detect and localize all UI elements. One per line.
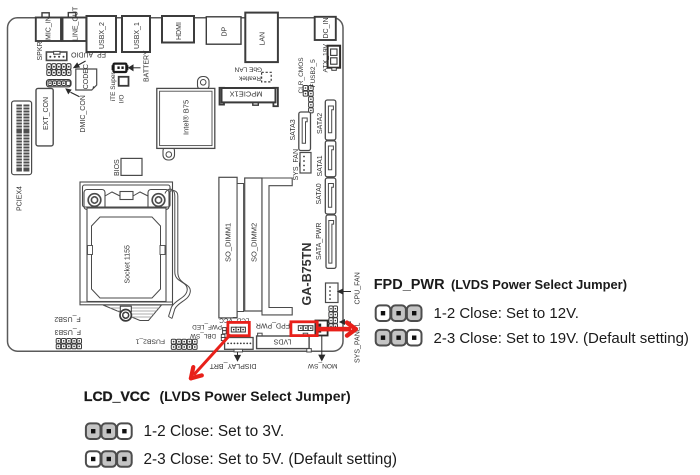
svg-text:SPKR: SPKR	[37, 41, 44, 60]
svg-text:SO_DIMM2: SO_DIMM2	[250, 223, 259, 262]
svg-text:EXT_CON: EXT_CON	[43, 97, 50, 130]
svg-text:BATTERY: BATTERY	[144, 50, 151, 82]
svg-text:USBX_2: USBX_2	[99, 22, 106, 49]
svg-text:GbE LAN: GbE LAN	[234, 65, 262, 72]
svg-text:SATA2: SATA2	[317, 113, 324, 134]
svg-text:FPD_PWR(LVDS Power Select Jump: FPD_PWR(LVDS Power Select Jumper)	[374, 277, 627, 293]
svg-text:FPD_PWR: FPD_PWR	[256, 322, 290, 329]
svg-text:CPU_FAN: CPU_FAN	[355, 272, 362, 304]
svg-text:Intel® B75: Intel® B75	[182, 100, 191, 135]
svg-text:Socket 1155: Socket 1155	[125, 245, 132, 284]
svg-text:DBL_SW: DBL_SW	[190, 332, 216, 339]
svg-text:BIOS: BIOS	[114, 159, 121, 176]
svg-text:SATA0: SATA0	[316, 183, 323, 204]
svg-text:PCIEX4: PCIEX4	[17, 186, 24, 211]
svg-text:iTE Super: iTE Super	[110, 72, 117, 102]
svg-text:2-3 Close: Set to 5V. (Default: 2-3 Close: Set to 5V. (Default setting)	[144, 451, 398, 468]
svg-text:Realtek: Realtek	[238, 75, 261, 82]
svg-text:DC_IN: DC_IN	[323, 17, 330, 38]
svg-text:LCD_VCC(LVDS Power Select Jump: LCD_VCC(LVDS Power Select Jumper)	[84, 388, 351, 404]
svg-text:HDMI: HDMI	[176, 22, 183, 40]
svg-text:1-2 Close: Set to 12V.: 1-2 Close: Set to 12V.	[434, 305, 579, 322]
svg-text:2-3 Close: Set to 19V. (Defaul: 2-3 Close: Set to 19V. (Default setting)	[434, 330, 689, 347]
svg-text:USBX_1: USBX_1	[134, 22, 141, 49]
svg-text:CODEC: CODEC	[83, 64, 90, 89]
svg-text:FP_AUDIO: FP_AUDIO	[70, 51, 106, 58]
svg-text:LVDS: LVDS	[273, 338, 291, 345]
svg-text:DISPLAY_BRT: DISPLAY_BRT	[209, 362, 257, 369]
svg-text:LINE_OUT: LINE_OUT	[73, 6, 80, 41]
svg-text:I/O: I/O	[119, 95, 126, 104]
svg-text:FUSB2_1: FUSB2_1	[135, 338, 165, 345]
svg-text:SO_DIMM1: SO_DIMM1	[224, 223, 233, 262]
svg-text:SATA1: SATA1	[317, 155, 324, 176]
svg-text:FUSB2_5: FUSB2_5	[310, 59, 317, 88]
svg-text:GA-B75TN: GA-B75TN	[300, 243, 314, 306]
svg-text:DP: DP	[222, 26, 229, 36]
svg-text:MPCIE1X: MPCIE1X	[230, 89, 263, 98]
svg-text:LAN: LAN	[260, 32, 267, 46]
svg-text:MIC_IN: MIC_IN	[46, 16, 53, 40]
svg-text:SATA_PWR: SATA_PWR	[316, 223, 323, 260]
svg-text:MON_SW: MON_SW	[307, 362, 337, 369]
svg-text:1-2 Close: Set to 3V.: 1-2 Close: Set to 3V.	[144, 423, 285, 440]
svg-text:SATA3: SATA3	[290, 119, 297, 140]
svg-text:DMIC_CON: DMIC_CON	[80, 95, 87, 132]
svg-text:F_USB2: F_USB2	[54, 315, 81, 322]
svg-text:SYS_FAN: SYS_FAN	[293, 149, 300, 181]
svg-text:CLR_CMOS: CLR_CMOS	[298, 57, 305, 94]
svg-text:ATX_19V: ATX_19V	[323, 43, 330, 72]
svg-text:PWF_LED: PWF_LED	[192, 323, 222, 330]
svg-text:F_USB3: F_USB3	[54, 328, 81, 335]
